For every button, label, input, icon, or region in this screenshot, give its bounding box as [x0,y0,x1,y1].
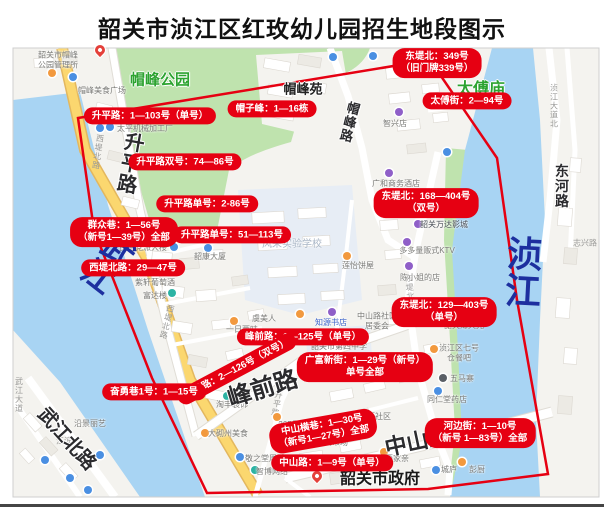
red-label-maozifeng: 帽子峰：1—16栋 [228,100,317,117]
poi-label: 五马寨 [450,374,474,384]
poi-label: 莲怡饼屋 [342,261,374,271]
red-label-shengping-shuang-74-86: 升平路双号：74—86号 [128,153,241,170]
minor-road-label: 西堤北路 [90,133,106,170]
red-label-fengqian-dan: 峰前路：1—125号（单号） [237,328,369,345]
poi-marker-icon [430,345,438,353]
poi-label: 彭厨 [469,465,485,475]
poi-label: 富达楼 [143,291,167,301]
red-label-hebian-jie: 河边街：1—10号（新号 1—83号）全部 [425,418,536,448]
street-label: 帽峰路 [335,99,364,144]
poi-marker-icon [41,456,49,464]
poi-marker-icon [230,317,238,325]
poi-marker-icon [69,73,77,81]
minor-road-label: 浈江大道北 [549,84,560,129]
minor-road-label: 武江大道 [14,377,25,413]
poi-marker-icon [443,148,451,156]
red-label-shengping-dan-51-113: 升平路单号：51—113号 [173,226,291,243]
poi-label: 浈江区七号仓餐吧 [439,343,479,362]
poi-label: 韶关市政府 [340,469,420,488]
red-label-fenyong-xiang: 奋勇巷1号：1—15号 [102,383,206,400]
map-annotations: 西堤北路西堤北路升平路东堤北路浈江大道北志兴路江滨武江大道韶关市帽峰公园管理所帽… [0,0,604,512]
poi-marker-icon [296,310,304,318]
poi-marker-icon [96,124,104,132]
poi-label: 沿景丽艺 [74,419,106,429]
poi-marker-icon [48,69,56,77]
poi-marker-icon [66,474,74,482]
poi-label: 虞美人 [252,314,276,324]
red-label-xidibeilu-29-47: 西堤北路：29—47号 [81,259,185,276]
poi-marker-icon [439,374,447,382]
street-label: 武江北路 [33,401,104,476]
red-label-qunzhong-xiang: 群众巷：1—56号（新号1—39号）全部 [70,217,178,247]
river-label: 浈江 [493,234,549,311]
red-label-zhongshan-lu-1-9: 中山路：1—9号（单号） [271,454,393,471]
poi-marker-icon [204,244,212,252]
poi-label: 大砌州美食 [208,429,248,439]
red-label-dongdibei-129-403: 东堤北：129—403号（单号） [392,297,497,327]
poi-marker-icon [84,486,92,494]
poi-marker-icon [432,466,440,474]
poi-label: 多多量贩式KTV [399,246,455,256]
poi-marker-icon [405,262,413,270]
poi-label: 帽峰美食广场 [78,86,126,96]
poi-marker-icon [168,289,176,297]
map-document: 韶关市浈江区红玫幼儿园招生地段图示 [0,0,604,512]
poi-label: 韶关市帽峰公园管理所 [38,50,78,69]
area-label: 帽峰公园 [130,69,190,90]
map-pin-icon [93,43,107,57]
red-label-dongdibei-168-404: 东堤北：168—404号（双号） [374,188,479,218]
poi-marker-icon [395,108,403,116]
window-bottom-edge [0,504,604,507]
poi-label: 城庐 [441,465,457,475]
minor-road-label: 志兴路 [573,238,597,249]
red-label-dongdibei-349: 东堤北：349号（旧门牌339号） [393,48,482,78]
poi-marker-icon [328,308,336,316]
red-label-shengping-dan-2-86: 升平路单号：2-86号 [156,195,258,212]
poi-label: 陈小姐的店 [400,273,440,283]
poi-marker-icon [329,53,337,61]
poi-label: 韶康大厦 [194,252,226,262]
poi-marker-icon [458,458,466,466]
poi-marker-icon [434,387,442,395]
street-label: 东河路 [552,164,572,209]
poi-label: 同仁堂药店 [427,395,467,405]
poi-label: 知源书店 [315,318,347,328]
minor-road-label: 西堤北路 [157,303,176,341]
poi-marker-icon [369,52,377,60]
poi-marker-icon [403,238,411,246]
red-label-guangfu-xinjie: 广富新街：1—29号（新号）单号全部 [297,352,433,382]
poi-label: 韶关万达影城 [420,220,468,230]
poi-marker-icon [385,169,393,177]
red-label-taifu-jie: 太傅街：2—94号 [423,92,512,109]
poi-label: 智兴店 [383,119,407,129]
area-label: 帽峰苑 [283,79,322,98]
poi-label: 紫轩葡萄酒 [135,278,175,288]
red-label-shengping-1-103: 升平路：1—103号（单号） [84,107,216,124]
poi-marker-icon [236,453,244,461]
poi-marker-icon [343,252,351,260]
